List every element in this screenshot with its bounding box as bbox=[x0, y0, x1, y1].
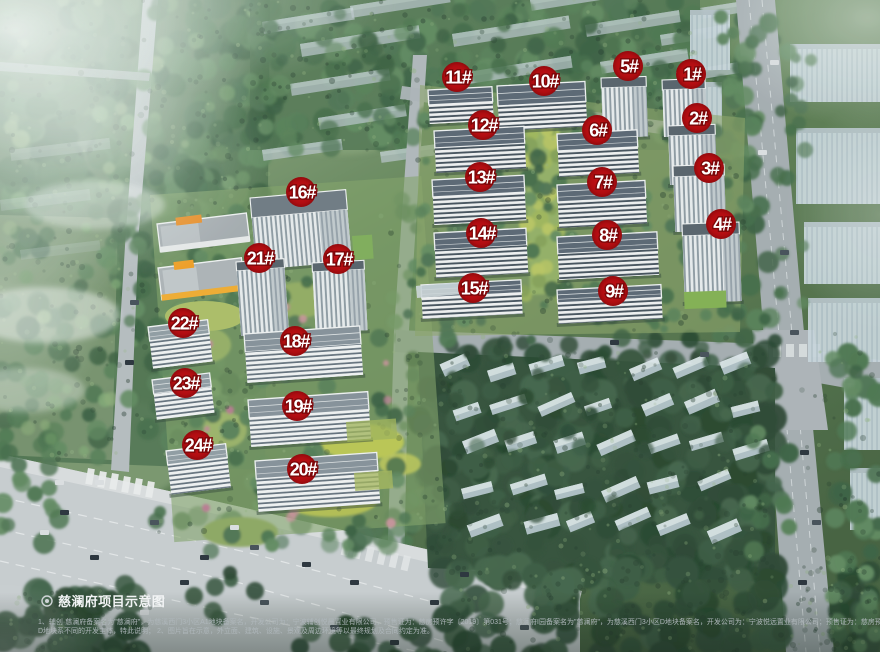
svg-text:1#: 1# bbox=[683, 65, 702, 85]
svg-text:5#: 5# bbox=[620, 57, 639, 77]
svg-text:19#: 19# bbox=[285, 397, 313, 417]
svg-text:10#: 10# bbox=[532, 72, 560, 92]
svg-text:22#: 22# bbox=[171, 314, 199, 334]
svg-text:D地块系不同的开发主体，特此说明； 2、图片旨在示意，外立: D地块系不同的开发主体，特此说明； 2、图片旨在示意，外立面、建筑、设施、景观及… bbox=[38, 626, 434, 635]
svg-text:11#: 11# bbox=[445, 68, 472, 88]
svg-text:7#: 7# bbox=[594, 173, 613, 193]
svg-text:8#: 8# bbox=[599, 226, 618, 246]
svg-text:12#: 12# bbox=[471, 116, 499, 136]
svg-text:18#: 18# bbox=[283, 332, 311, 352]
svg-text:13#: 13# bbox=[468, 168, 496, 188]
svg-text:24#: 24# bbox=[185, 436, 213, 456]
svg-text:1、辅创·慈澜府备案名为"慈澜府"，为慈溪西门3小区A1地块: 1、辅创·慈澜府备案名为"慈澜府"，为慈溪西门3小区A1地块备案名，开发公司为：… bbox=[38, 617, 880, 626]
svg-text:23#: 23# bbox=[173, 374, 201, 394]
svg-text:2#: 2# bbox=[689, 109, 708, 129]
svg-text:20#: 20# bbox=[290, 460, 318, 480]
svg-text:17#: 17# bbox=[326, 250, 354, 270]
svg-text:15#: 15# bbox=[461, 279, 489, 299]
svg-text:14#: 14# bbox=[469, 224, 497, 244]
svg-text:9#: 9# bbox=[605, 282, 624, 302]
svg-text:16#: 16# bbox=[289, 183, 317, 203]
svg-text:21#: 21# bbox=[247, 249, 275, 269]
svg-text:6#: 6# bbox=[589, 121, 608, 141]
svg-text:4#: 4# bbox=[713, 215, 732, 235]
svg-text:3#: 3# bbox=[701, 159, 720, 179]
svg-text:慈澜府项目示意图: 慈澜府项目示意图 bbox=[58, 594, 165, 609]
